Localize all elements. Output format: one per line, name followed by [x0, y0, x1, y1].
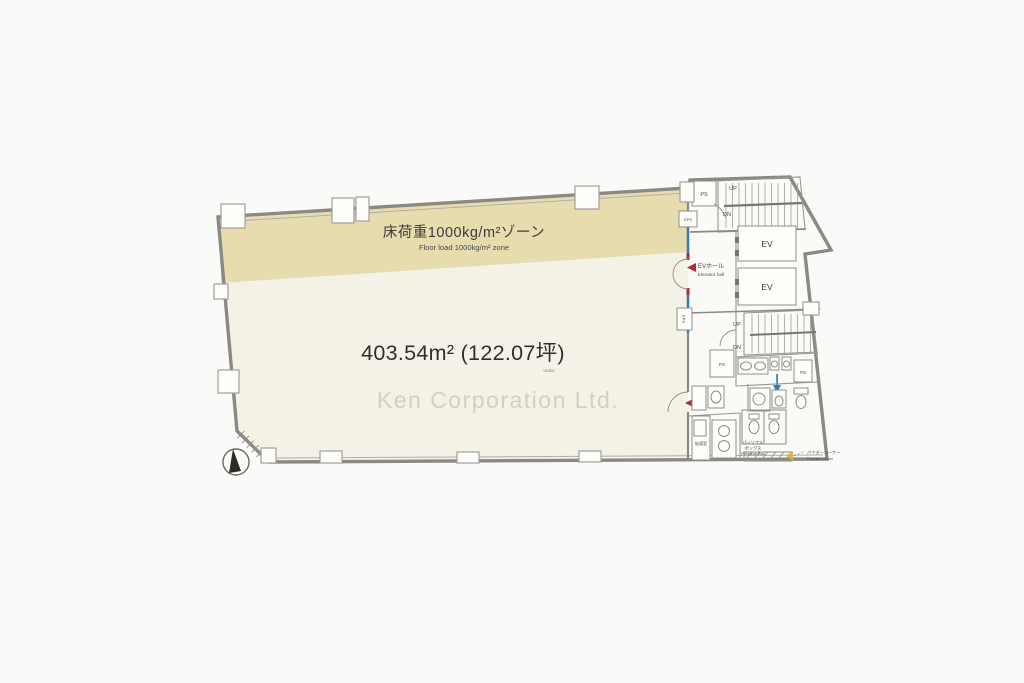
toilet-bowl	[769, 421, 779, 434]
eps-label: EPS	[684, 217, 692, 222]
watermark: Ken Corporation Ltd.	[377, 387, 619, 413]
area-label: 403.54m² (122.07坪)	[361, 341, 565, 365]
elevator-label: EV	[761, 282, 773, 292]
eps-label: EPS	[682, 315, 687, 323]
stair-down-label: DN	[723, 212, 731, 218]
toilet-tank	[769, 414, 779, 419]
personal-box-label-en: Personal Box	[741, 451, 765, 456]
cleaning-closet	[692, 386, 706, 410]
floor-load-zone-label-jp: 床荷重1000kg/m²ゾーン	[383, 224, 545, 241]
sink-bowl	[741, 362, 752, 370]
washbasin-bowl	[753, 393, 765, 405]
toilet-bowl	[796, 396, 806, 409]
toilet-tank	[749, 414, 759, 419]
toilet-bowl	[775, 396, 783, 406]
pipe-shaft-label: PS	[700, 192, 708, 198]
hot-water-sink	[694, 420, 706, 436]
stair-down-label: DN	[733, 345, 741, 351]
stair-up-label: UP	[729, 186, 737, 192]
powder-corner-label-en: Powder corner	[807, 456, 834, 461]
powder-corner-label-jp: パウダーコーナー	[807, 449, 841, 456]
pipe-shaft-label: PS	[719, 362, 725, 367]
toilet-tank	[794, 388, 808, 394]
north-arrow-icon	[223, 449, 249, 475]
floor-load-zone-label-en: Floor load 1000kg/m² zone	[419, 243, 509, 252]
mop-sink-bowl	[711, 391, 721, 403]
elevator-label: EV	[761, 239, 773, 249]
floor-plan-drawing: 床荷重1000kg/m²ゾーン Floor load 1000kg/m² zon…	[0, 0, 1024, 683]
floor-plan-page: 床荷重1000kg/m²ゾーン Floor load 1000kg/m² zon…	[0, 0, 1024, 683]
service-unit-bowl	[719, 426, 730, 437]
toilet-bowl	[749, 421, 759, 434]
pipe-shaft-label: PS	[800, 370, 806, 375]
elevator-hall-label-jp: EVホール	[698, 263, 724, 270]
sink-bowl	[755, 362, 766, 370]
elevator-hall-label-en: Elevator hall	[698, 272, 724, 278]
stair-up-label: UP	[733, 322, 741, 328]
hot-water-room-label: 給湯室	[695, 440, 707, 446]
service-unit-bowl	[719, 441, 730, 452]
area-unit-note: tsubo	[543, 368, 555, 373]
